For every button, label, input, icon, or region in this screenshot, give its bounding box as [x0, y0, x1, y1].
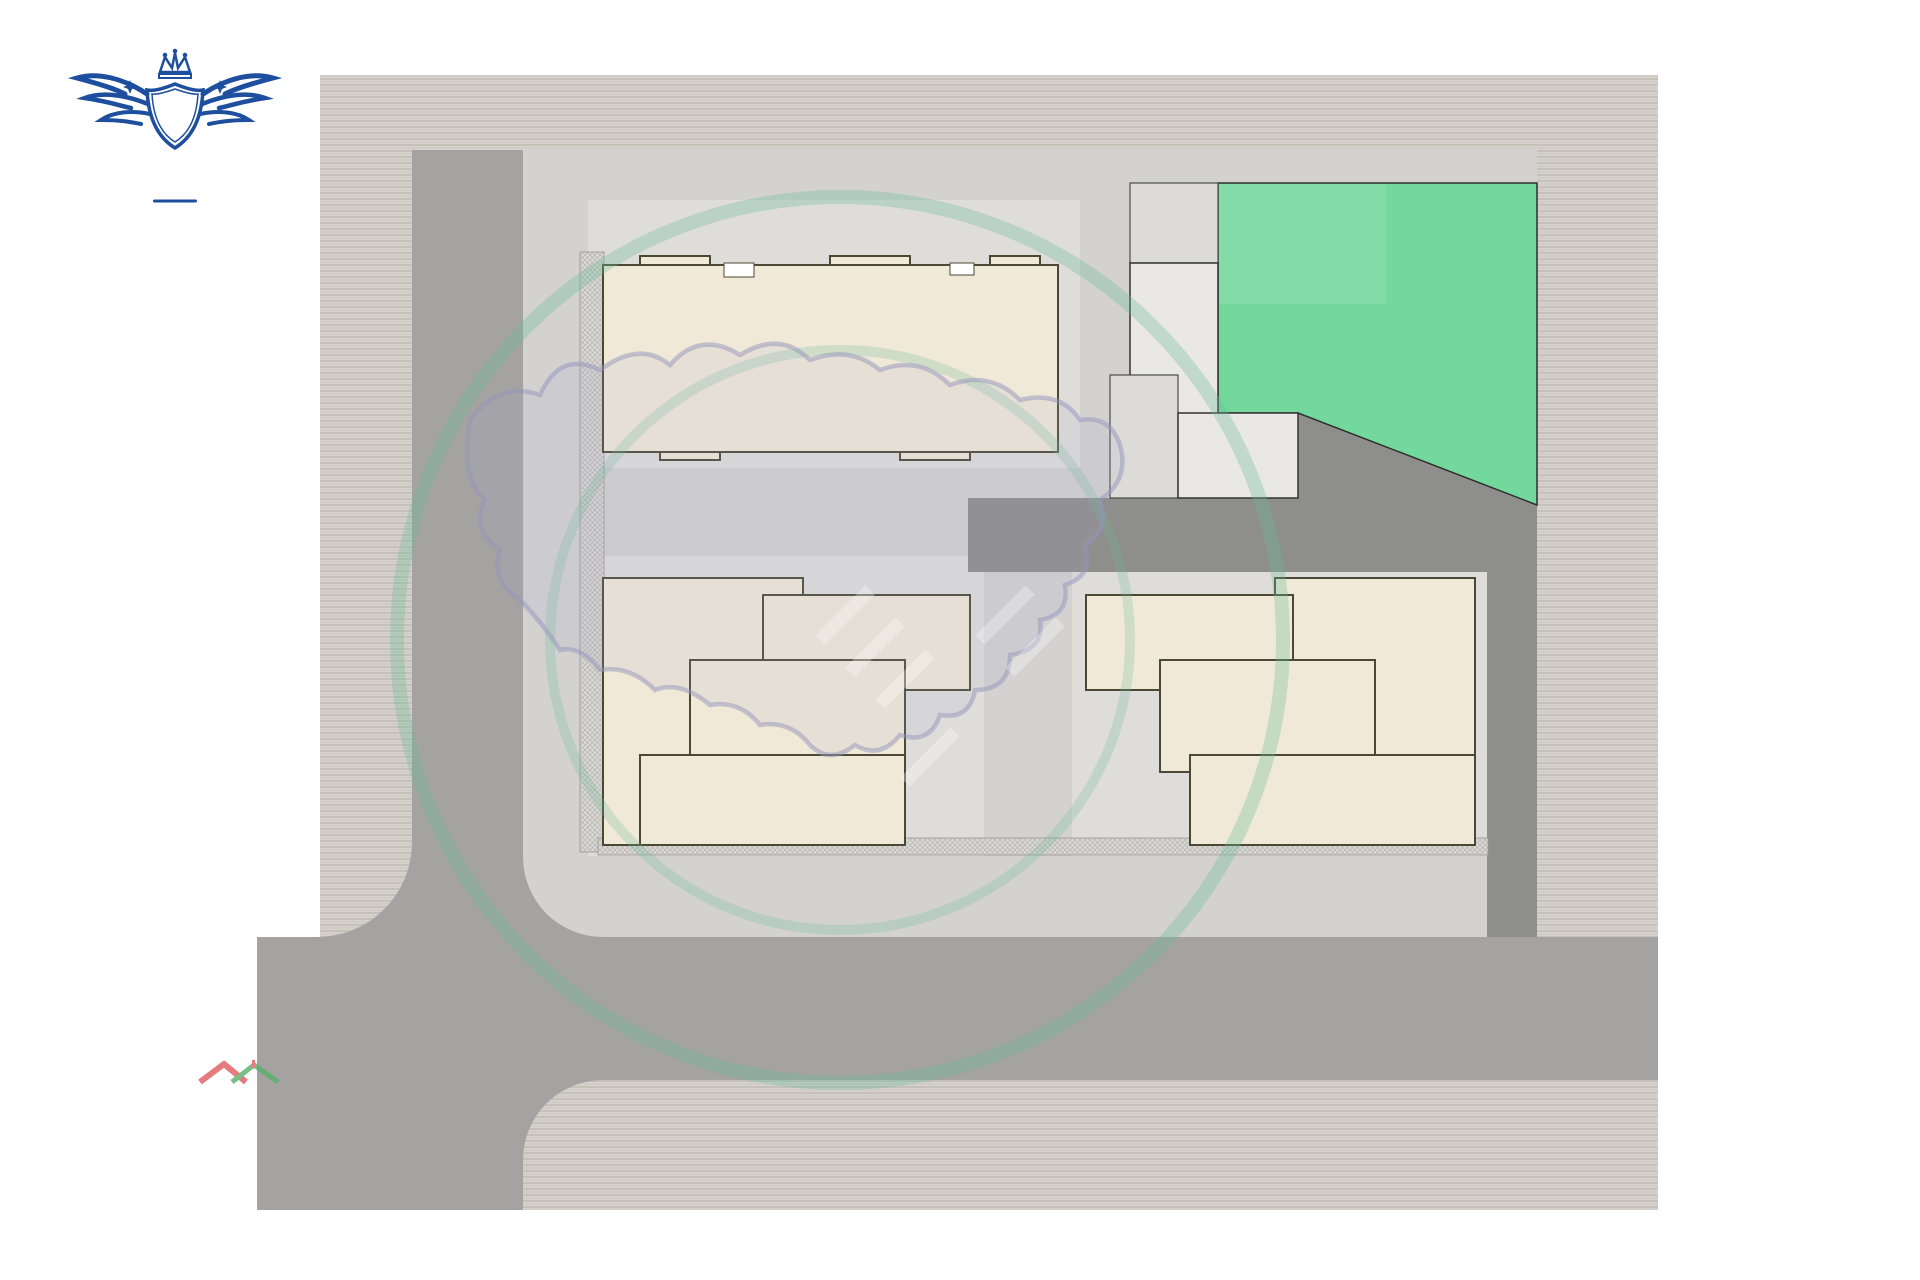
vincitore-logo: [55, 42, 295, 232]
logo-wings-shield-icon: [55, 42, 295, 232]
a2z-house-icon: [196, 1056, 286, 1086]
floor-plan-page: { "title": "VINCITORE RIVERA", "page_num…: [0, 0, 1920, 1280]
logo-underline: [153, 200, 197, 203]
